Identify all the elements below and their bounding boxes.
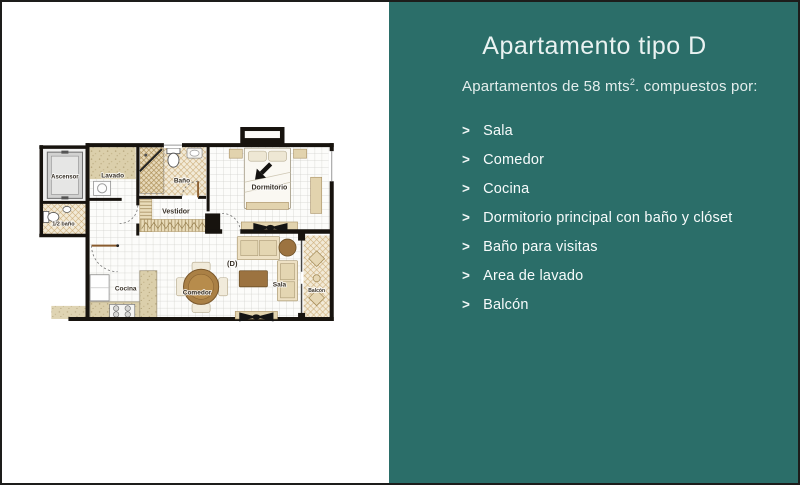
chevron-bullet-icon: > [462, 210, 470, 225]
slide: Ascensor Lavado Baño Dormitorio 1/2 baño… [0, 0, 800, 485]
label-ascensor: Ascensor [51, 174, 79, 180]
subtitle: Apartamentos de 58 mts2. compuestos por: [462, 78, 758, 95]
dresser [311, 177, 322, 213]
nightstand [294, 149, 307, 158]
feature-item-area-lavado: >Area de lavado [462, 268, 732, 284]
subtitle-post: . compuestos por: [635, 78, 758, 95]
bed [244, 148, 290, 209]
label-sala: Sala [273, 281, 287, 288]
chevron-bullet-icon: > [462, 181, 470, 196]
label-lavado: Lavado [101, 172, 124, 179]
side-table [279, 239, 296, 256]
washing-machine [94, 181, 111, 195]
chevron-bullet-icon: > [462, 152, 470, 167]
floorplan-area: Ascensor Lavado Baño Dormitorio 1/2 baño… [2, 2, 389, 483]
chevron-bullet-icon: > [462, 239, 470, 254]
label-balcon: Balcón [308, 288, 325, 294]
feature-label: Cocina [483, 181, 529, 197]
info-panel: Apartamento tipo D Apartamentos de 58 mt… [389, 2, 800, 483]
floorplan: Ascensor Lavado Baño Dormitorio 1/2 baño… [33, 125, 337, 327]
chevron-bullet-icon: > [462, 268, 470, 283]
feature-label: Baño para visitas [483, 239, 598, 255]
feature-item-balcon: >Balcón [462, 297, 732, 313]
label-comedor: Comedor [183, 289, 212, 296]
feature-label: Dormitorio principal con baño y clóset [483, 210, 732, 226]
feature-item-cocina: >Cocina [462, 181, 732, 197]
nightstand [229, 149, 242, 158]
feature-label: Comedor [483, 152, 544, 168]
chevron-bullet-icon: > [462, 297, 470, 312]
label-bano: Baño [174, 177, 190, 184]
label-unit: (D) [227, 259, 238, 268]
feature-item-comedor: >Comedor [462, 152, 732, 168]
label-medio-bano: 1/2 baño [52, 221, 75, 227]
feature-label: Balcón [483, 297, 529, 313]
feature-item-bano-visitas: >Baño para visitas [462, 239, 732, 255]
page-title: Apartamento tipo D [389, 32, 800, 61]
feature-list: >Sala >Comedor >Cocina >Dormitorio princ… [462, 123, 732, 326]
label-vestidor: Vestidor [162, 208, 190, 215]
feature-item-dormitorio: >Dormitorio principal con baño y clóset [462, 210, 732, 226]
chevron-bullet-icon: > [462, 123, 470, 138]
label-dormitorio: Dormitorio [251, 184, 288, 191]
feature-label: Area de lavado [483, 268, 583, 284]
coffee-table [239, 271, 267, 287]
subtitle-pre: Apartamentos de 58 mts [462, 78, 630, 95]
feature-item-sala: >Sala [462, 123, 732, 139]
label-cocina: Cocina [115, 285, 137, 292]
feature-label: Sala [483, 123, 513, 139]
